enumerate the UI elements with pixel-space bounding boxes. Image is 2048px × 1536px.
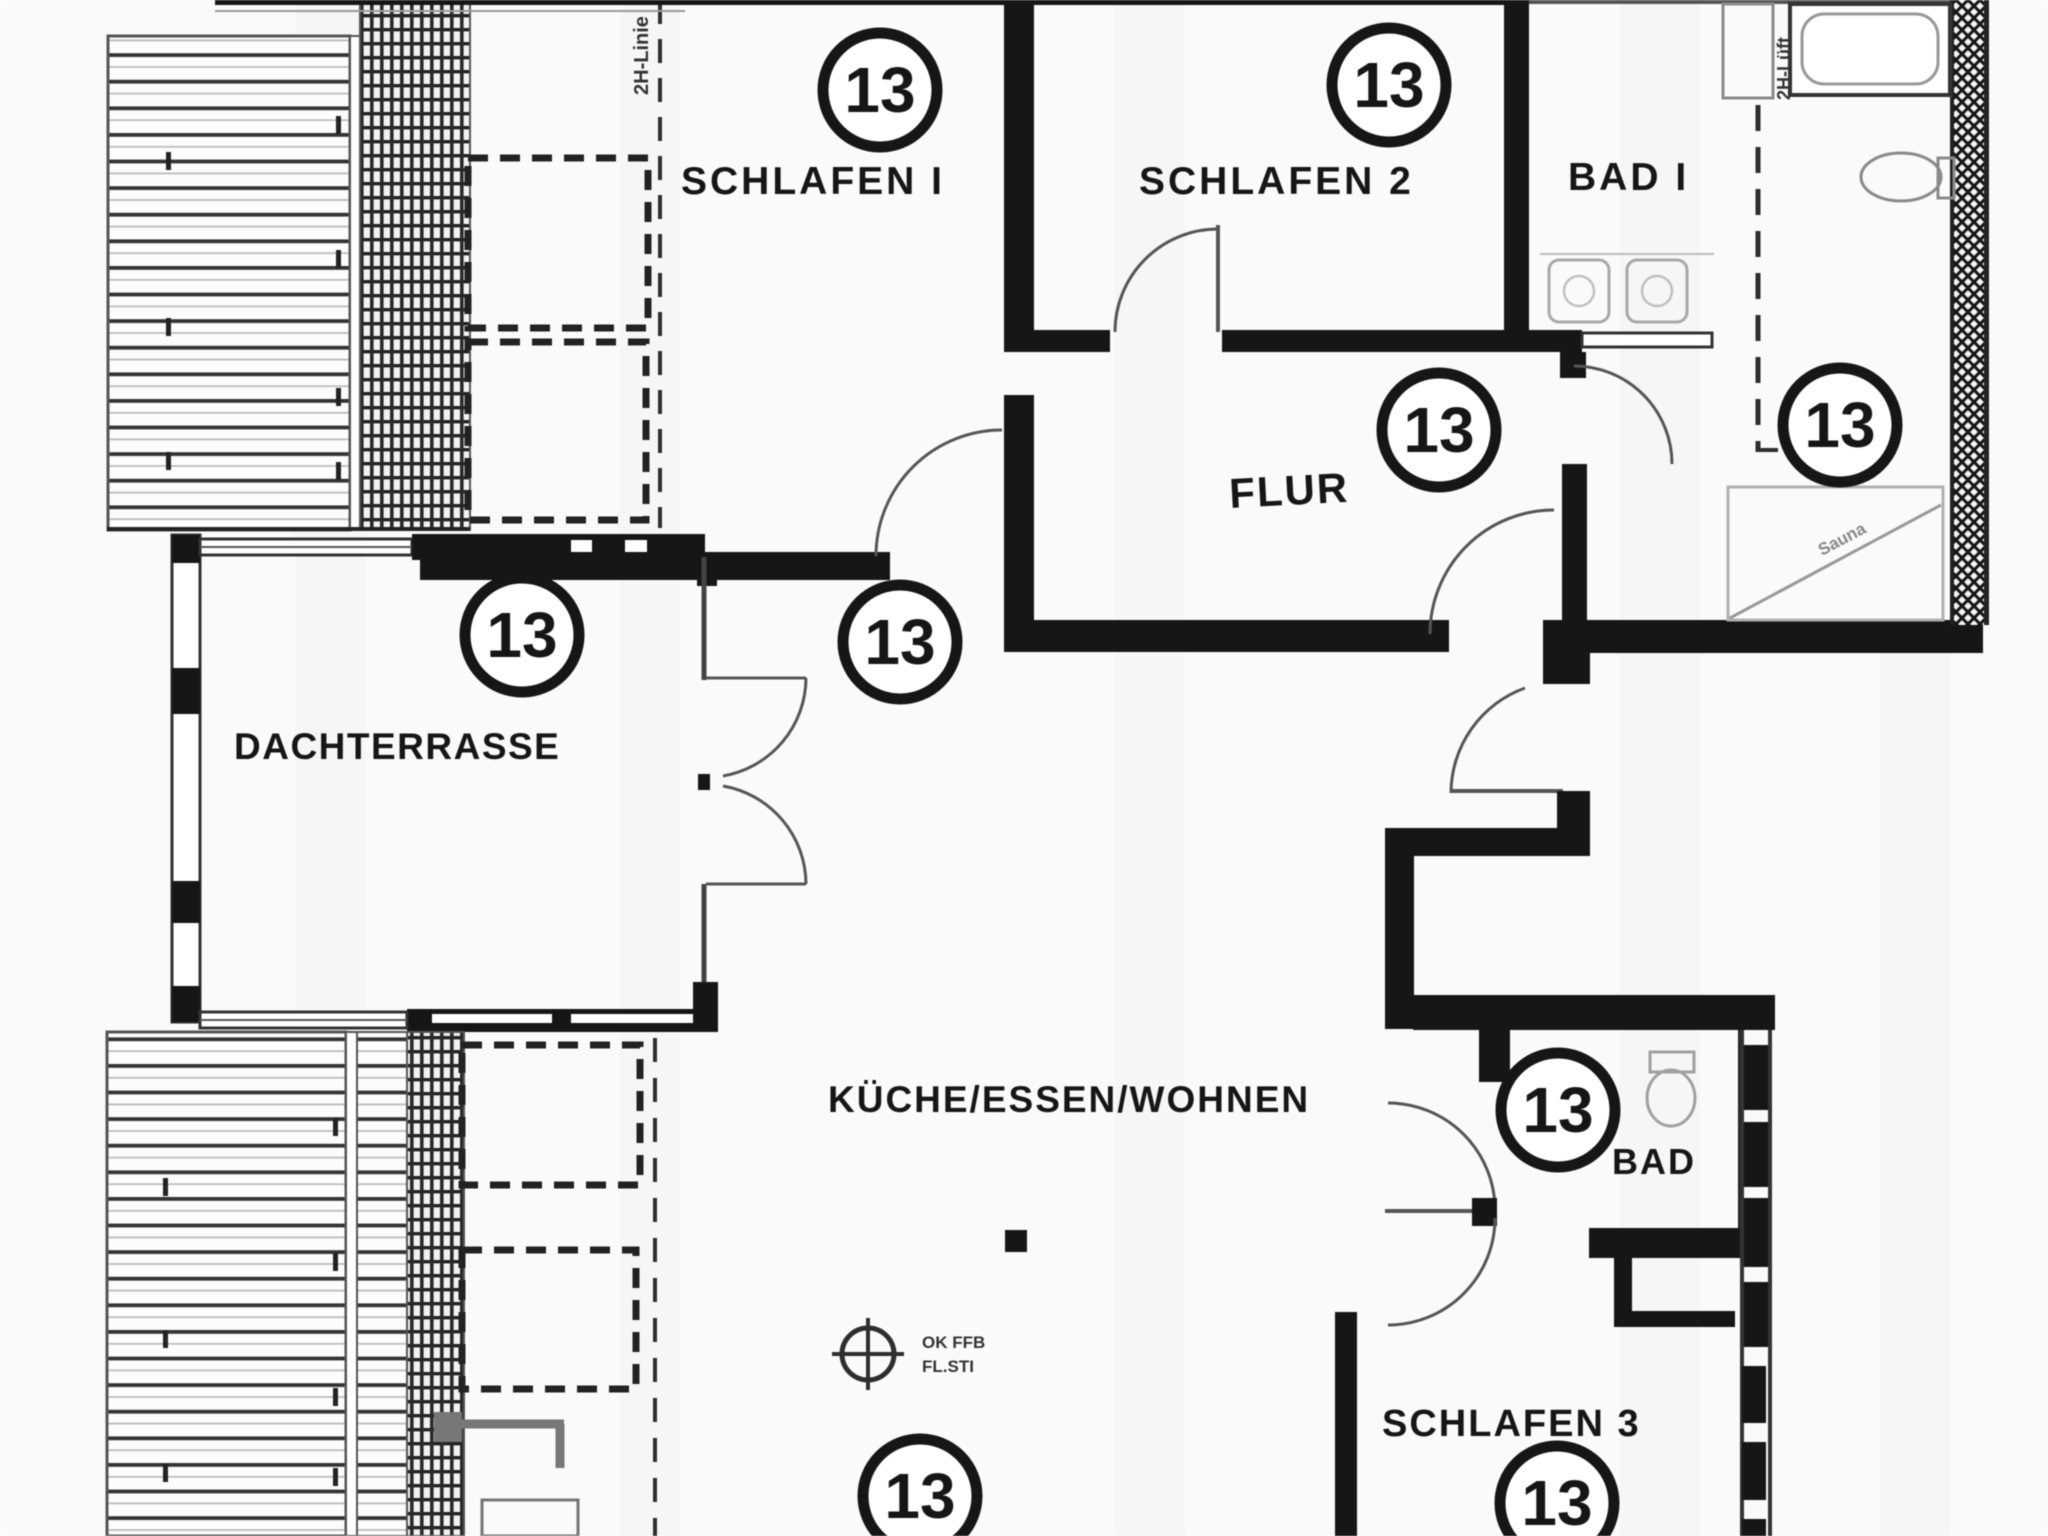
svg-text:BAD I: BAD I [1568,156,1689,199]
svg-text:BAD: BAD [1612,1141,1696,1182]
svg-text:13: 13 [486,599,557,671]
svg-text:13: 13 [1403,394,1474,466]
svg-text:13: 13 [1522,1074,1593,1146]
svg-text:13: 13 [1353,49,1424,121]
svg-text:13: 13 [884,1460,955,1532]
svg-text:SCHLAFEN 2: SCHLAFEN 2 [1139,160,1414,203]
svg-text:13: 13 [844,54,915,126]
svg-text:OK FFB: OK FFB [922,1333,985,1352]
svg-text:SCHLAFEN 3: SCHLAFEN 3 [1382,1403,1641,1445]
svg-text:13: 13 [1521,1467,1592,1536]
svg-text:DACHTERRASSE: DACHTERRASSE [234,726,560,767]
svg-text:13: 13 [864,606,935,678]
svg-text:FL.STI: FL.STI [922,1357,974,1376]
svg-text:FLUR: FLUR [1228,464,1350,517]
svg-text:KÜCHE/ESSEN/WOHNEN: KÜCHE/ESSEN/WOHNEN [828,1079,1310,1120]
svg-text:13: 13 [1804,389,1875,461]
svg-text:SCHLAFEN I: SCHLAFEN I [681,160,945,203]
svg-text:2H-Linie: 2H-Linie [631,16,653,95]
